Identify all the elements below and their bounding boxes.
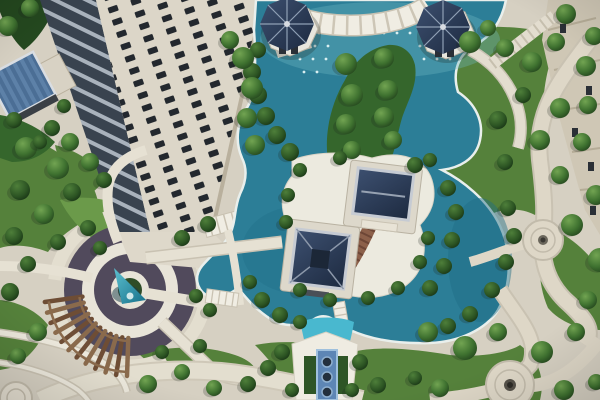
- bush: [200, 216, 216, 232]
- bush: [155, 345, 169, 359]
- tree: [29, 323, 47, 341]
- tree: [551, 166, 569, 184]
- bush: [285, 383, 299, 397]
- bush: [281, 188, 295, 202]
- tree: [531, 341, 553, 363]
- tree: [47, 157, 69, 179]
- bush: [1, 283, 19, 301]
- tree: [418, 322, 438, 342]
- bush: [80, 220, 96, 236]
- tree: [556, 4, 576, 24]
- bush: [293, 283, 307, 297]
- tree: [336, 114, 356, 134]
- bush: [515, 87, 531, 103]
- bush: [361, 291, 375, 305]
- bush: [272, 307, 288, 323]
- tree: [378, 80, 398, 100]
- fountain-jet: [325, 58, 328, 61]
- bush: [448, 204, 464, 220]
- tree: [431, 379, 449, 397]
- path-node-a: [523, 220, 563, 260]
- bush: [50, 234, 66, 250]
- tree: [384, 131, 402, 149]
- gazebo-finial: [440, 24, 446, 30]
- fountain-jet: [316, 71, 319, 74]
- bush: [260, 360, 276, 376]
- tree: [10, 348, 26, 364]
- feature-pots: [322, 357, 332, 397]
- bush: [352, 354, 368, 370]
- bush: [370, 377, 386, 393]
- bush: [268, 126, 286, 144]
- tree: [34, 204, 54, 224]
- tree: [579, 291, 597, 309]
- bush: [440, 180, 456, 196]
- tree: [221, 31, 239, 49]
- bush: [33, 135, 47, 149]
- bush: [243, 275, 257, 289]
- scene-canvas: [0, 0, 600, 400]
- fountain-jet: [396, 32, 399, 35]
- bush: [57, 99, 71, 113]
- fountain-jet: [312, 58, 315, 61]
- bush: [498, 254, 514, 270]
- tree: [61, 133, 79, 151]
- tree: [547, 33, 565, 51]
- tree: [576, 56, 596, 76]
- tree: [341, 84, 363, 106]
- bush: [333, 151, 347, 165]
- bush: [20, 256, 36, 272]
- bush: [293, 163, 307, 177]
- bush: [489, 111, 507, 129]
- tree: [81, 153, 99, 171]
- bush: [193, 339, 207, 353]
- tree: [453, 336, 477, 360]
- tree: [374, 107, 394, 127]
- aerial-courtyard-photo: [0, 0, 600, 400]
- tree: [206, 380, 222, 396]
- tree: [335, 53, 357, 75]
- tree: [573, 133, 591, 151]
- bush: [484, 282, 500, 298]
- tree: [567, 323, 585, 341]
- tree: [480, 20, 496, 36]
- bush: [257, 107, 275, 125]
- bush: [462, 306, 478, 322]
- tree: [232, 47, 254, 69]
- pavilion-lower: [280, 219, 360, 301]
- bush: [279, 215, 293, 229]
- bush: [444, 232, 460, 248]
- bush: [44, 120, 60, 136]
- bush: [422, 280, 438, 296]
- bush: [323, 293, 337, 307]
- tree: [245, 135, 265, 155]
- bush: [93, 241, 107, 255]
- tree: [554, 380, 574, 400]
- fountain-jet: [423, 58, 426, 61]
- bush: [436, 258, 452, 274]
- gazebo-finial: [284, 21, 290, 27]
- bush: [440, 318, 456, 334]
- bush: [203, 303, 217, 317]
- bush: [408, 371, 422, 385]
- tree: [459, 31, 481, 53]
- bush: [281, 143, 299, 161]
- bush: [189, 289, 203, 303]
- bush: [96, 172, 112, 188]
- bush: [254, 292, 270, 308]
- fountain-jet: [409, 32, 412, 35]
- tree: [374, 48, 394, 68]
- bush: [293, 315, 307, 329]
- tree: [530, 130, 550, 150]
- bush: [497, 154, 513, 170]
- tree: [550, 98, 570, 118]
- tree: [522, 52, 542, 72]
- fountain-jet: [303, 71, 306, 74]
- bush: [345, 383, 359, 397]
- tree: [496, 39, 514, 57]
- bush: [500, 200, 516, 216]
- bush: [10, 180, 30, 200]
- tree: [139, 375, 157, 393]
- tree: [174, 364, 190, 380]
- bush: [6, 112, 22, 128]
- bush: [5, 227, 23, 245]
- bush: [174, 230, 190, 246]
- bush: [391, 281, 405, 295]
- bush: [421, 231, 435, 245]
- tree: [579, 96, 597, 114]
- bush: [63, 183, 81, 201]
- bush: [274, 344, 290, 360]
- tree: [237, 108, 257, 128]
- fountain-jet: [327, 45, 330, 48]
- path-node-b: [486, 361, 534, 400]
- tree: [489, 323, 507, 341]
- pergola-slat: [127, 338, 128, 376]
- bush: [240, 376, 256, 392]
- bush: [423, 153, 437, 167]
- bush: [413, 255, 427, 269]
- tree: [561, 214, 583, 236]
- bush: [506, 228, 522, 244]
- tree: [241, 77, 263, 99]
